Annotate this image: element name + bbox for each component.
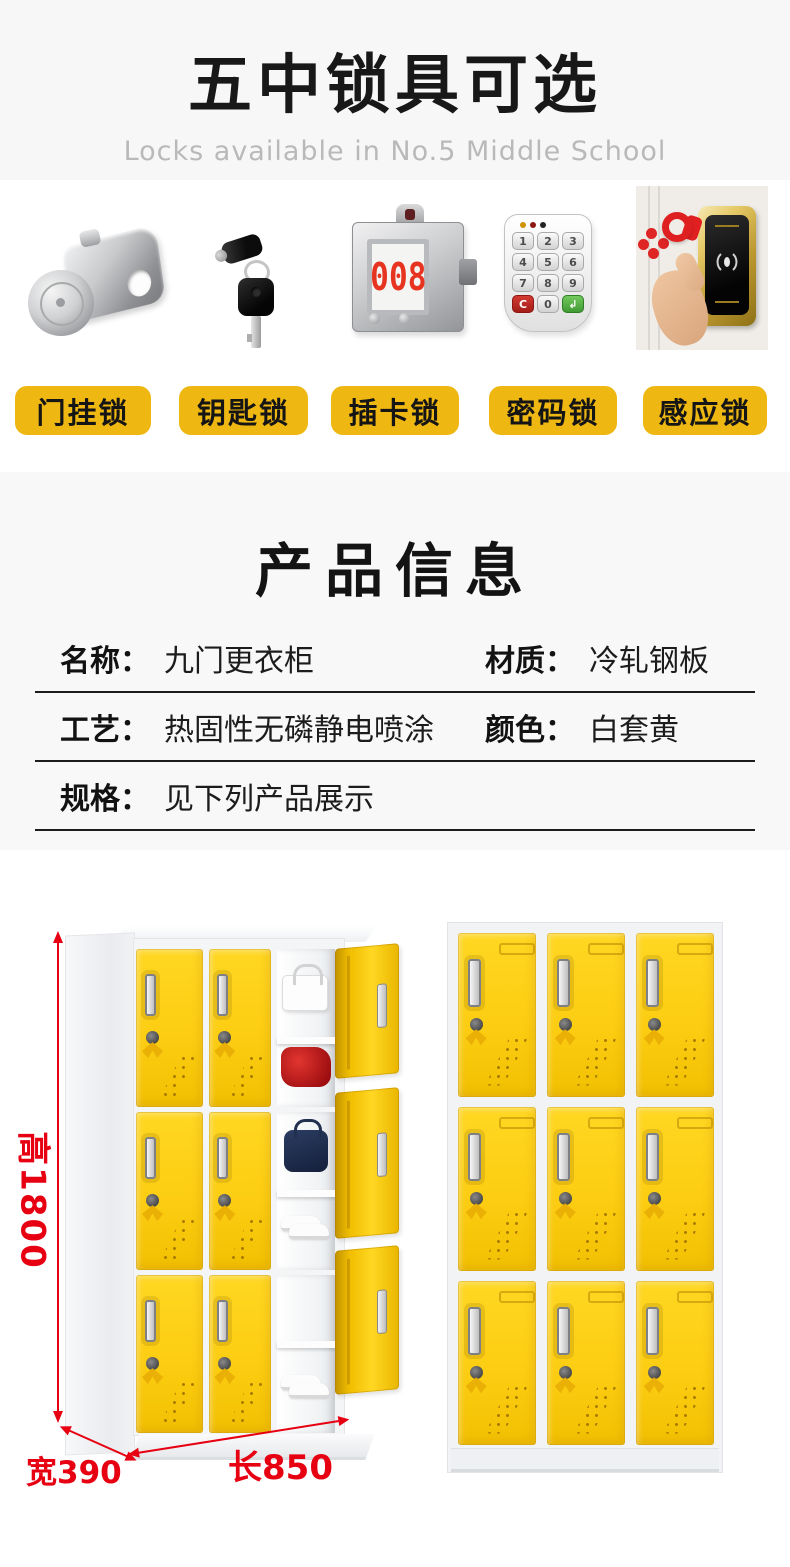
height-dimension-label: 高1800	[12, 1121, 61, 1281]
key-lock-photo	[214, 234, 284, 350]
keypad-key-0: 0	[537, 295, 559, 313]
white-handbag	[282, 975, 328, 1011]
keypad-key-6: 6	[562, 253, 584, 271]
locker-photo-closed	[447, 922, 723, 1473]
keypad-key-clear: C	[512, 295, 534, 313]
keypad-key-4: 4	[512, 253, 534, 271]
locker-door	[636, 933, 714, 1097]
keypad-lock-photo: 1 2 3 4 5 6 7 8 9 C 0 ↲	[504, 214, 592, 332]
keypad-indicator-lights	[512, 221, 584, 229]
product-info-title: 产品信息	[0, 524, 790, 608]
keypad-key-2: 2	[537, 232, 559, 250]
spec-process: 工艺： 热固性无磷静电喷涂	[35, 705, 485, 749]
keyfob-bead	[648, 248, 659, 259]
spec-color: 颜色： 白套黄	[485, 705, 679, 749]
locker-plinth	[451, 1448, 719, 1472]
card-lock-latch	[459, 259, 477, 285]
keypad-key-enter: ↲	[562, 295, 584, 313]
locker-door	[547, 1281, 625, 1445]
shelf	[277, 1341, 335, 1348]
locker-side-panel	[65, 932, 135, 1455]
product-detail-page: 五中锁具可选 Locks available in No.5 Middle Sc…	[0, 0, 790, 1567]
open-compartment	[277, 1275, 335, 1433]
lock-type-badge-key: 钥匙锁	[179, 386, 308, 435]
card-lock-body: 008	[352, 222, 464, 332]
table-row: 规格： 见下列产品展示	[35, 762, 755, 831]
locker-door	[136, 949, 203, 1107]
lock-type-badge-rfid: 感应锁	[643, 386, 767, 435]
white-sneakers	[281, 1216, 329, 1236]
width-dimension-label: 宽390	[26, 1447, 122, 1492]
keyfob-bead	[646, 228, 657, 239]
lock-type-badge-hasp: 门挂锁	[15, 386, 151, 435]
locker-door	[458, 1107, 536, 1271]
card-lock-photo: 008	[344, 204, 472, 340]
card-lock-screws	[369, 313, 439, 325]
locker-door	[136, 1112, 203, 1270]
locker-door	[636, 1107, 714, 1271]
table-row: 名称： 九门更衣柜 材质： 冷轧钢板	[35, 624, 755, 693]
locker-door	[458, 1281, 536, 1445]
open-compartment	[277, 949, 335, 1107]
locker-door	[209, 949, 271, 1107]
keypad-key-3: 3	[562, 232, 584, 250]
page-subtitle: Locks available in No.5 Middle School	[0, 136, 790, 167]
locker-door	[209, 1112, 271, 1270]
product-info-table: 名称： 九门更衣柜 材质： 冷轧钢板 工艺： 热固性无磷静电喷涂 颜色： 白套黄…	[35, 624, 755, 831]
red-bag	[281, 1047, 331, 1087]
keyfob-bead	[658, 238, 669, 249]
hasp-drum-shape	[28, 270, 94, 336]
locker-door	[458, 933, 536, 1097]
spec-name: 名称： 九门更衣柜	[35, 636, 485, 680]
spec-size: 规格： 见下列产品展示	[35, 774, 485, 818]
card-lock-number: 008	[370, 255, 426, 299]
locker-door	[136, 1275, 203, 1433]
locker-front-panel	[133, 938, 345, 1436]
locker-photo-open	[63, 926, 408, 1471]
keyfob-ring	[662, 212, 692, 242]
lock-type-badge-card: 插卡锁	[331, 386, 459, 435]
key-shaft-shape	[251, 316, 261, 348]
keypad-key-1: 1	[512, 232, 534, 250]
locker-door	[209, 1275, 271, 1433]
table-row: 工艺： 热固性无磷静电喷涂 颜色： 白套黄	[35, 693, 755, 762]
open-compartment	[277, 1112, 335, 1270]
spec-material: 材质： 冷轧钢板	[485, 636, 709, 680]
white-sneakers	[281, 1375, 329, 1395]
rfid-lock-face	[705, 215, 749, 315]
door-seam-line	[648, 186, 650, 350]
locker-door	[636, 1281, 714, 1445]
open-locker-door	[335, 1087, 399, 1239]
open-locker-door	[335, 1245, 399, 1395]
shelf	[277, 1190, 335, 1197]
navy-handbag	[284, 1130, 328, 1172]
rfid-lock-photo	[636, 186, 768, 350]
hasp-lock-photo	[22, 230, 168, 342]
keypad-key-9: 9	[562, 274, 584, 292]
locker-door	[547, 1107, 625, 1271]
locker-door	[547, 933, 625, 1097]
open-locker-door	[335, 943, 399, 1079]
lock-type-badge-keypad: 密码锁	[489, 386, 617, 435]
rfid-waves-icon	[715, 249, 739, 275]
keypad-key-8: 8	[537, 274, 559, 292]
shelf	[277, 1037, 335, 1044]
keypad-keys: 1 2 3 4 5 6 7 8 9 C 0 ↲	[512, 232, 584, 313]
card-lock-number-plate: 008	[367, 239, 429, 315]
page-title: 五中锁具可选	[0, 34, 790, 126]
keypad-key-7: 7	[512, 274, 534, 292]
keypad-key-5: 5	[537, 253, 559, 271]
key-head-shape	[238, 278, 274, 316]
length-dimension-label: 长850	[228, 1440, 333, 1489]
keyfob-bead	[638, 239, 649, 250]
